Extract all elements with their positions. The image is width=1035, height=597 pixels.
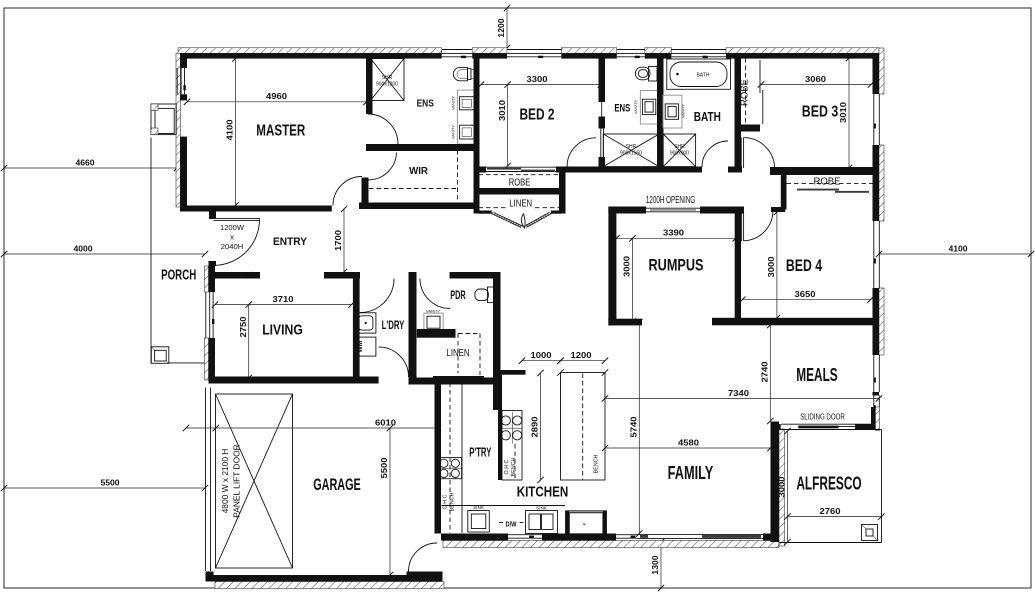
- svg-text:VANITY: VANITY: [681, 104, 686, 118]
- svg-text:PANEL LIFT DOOR: PANEL LIFT DOOR: [232, 444, 242, 517]
- svg-text:F: F: [582, 522, 587, 525]
- svg-text:4580: 4580: [678, 437, 699, 447]
- svg-text:FAMILY: FAMILY: [668, 463, 714, 483]
- svg-text:3000: 3000: [622, 256, 632, 277]
- svg-text:SHR: SHR: [626, 144, 637, 150]
- svg-text:900x1550: 900x1550: [620, 151, 642, 157]
- svg-text:4660: 4660: [75, 157, 94, 167]
- svg-text:BENCH: BENCH: [450, 492, 456, 511]
- svg-text:3710: 3710: [273, 294, 294, 304]
- svg-text:3390: 3390: [663, 228, 684, 238]
- svg-text:1200: 1200: [571, 350, 592, 360]
- svg-text:3010: 3010: [497, 100, 507, 121]
- svg-text:1200W: 1200W: [220, 223, 245, 232]
- svg-text:900x900: 900x900: [670, 151, 689, 157]
- svg-text:P'TRY: P'TRY: [469, 445, 492, 459]
- svg-text:SINK: SINK: [536, 506, 548, 511]
- svg-text:PORCH: PORCH: [161, 268, 196, 284]
- svg-text:2740: 2740: [760, 361, 770, 382]
- svg-text:4960: 4960: [266, 91, 287, 101]
- svg-text:2040H: 2040H: [221, 242, 243, 251]
- svg-text:3060: 3060: [805, 74, 826, 84]
- svg-text:1200H OPENING: 1200H OPENING: [646, 195, 695, 206]
- svg-text:SINK: SINK: [473, 505, 485, 510]
- svg-text:4100: 4100: [225, 119, 235, 140]
- svg-text:BED 3: BED 3: [802, 103, 839, 120]
- svg-text:1200: 1200: [496, 18, 506, 37]
- svg-text:KITCHEN: KITCHEN: [517, 484, 569, 501]
- svg-text:3300: 3300: [527, 74, 548, 84]
- svg-text:ENS: ENS: [614, 103, 630, 115]
- svg-text:ALFRESCO: ALFRESCO: [796, 474, 861, 494]
- svg-text:4000: 4000: [73, 243, 92, 253]
- svg-text:SLIDING DOOR: SLIDING DOOR: [800, 413, 845, 422]
- svg-text:1300: 1300: [650, 555, 660, 574]
- svg-text:7340: 7340: [728, 388, 749, 398]
- svg-text:5740: 5740: [629, 416, 639, 437]
- svg-text:3650: 3650: [795, 289, 816, 299]
- svg-text:4800 W x 2100 H: 4800 W x 2100 H: [220, 449, 230, 514]
- svg-text:LINEN: LINEN: [509, 197, 532, 209]
- svg-text:ENTRY: ENTRY: [273, 236, 308, 248]
- svg-text:WM: WM: [357, 341, 364, 353]
- svg-text:VANITY: VANITY: [451, 96, 456, 110]
- svg-text:BENCH: BENCH: [511, 457, 517, 476]
- svg-text:BED 4: BED 4: [786, 256, 823, 275]
- svg-text:MASTER: MASTER: [256, 123, 305, 140]
- svg-text:ROBE: ROBE: [509, 177, 531, 189]
- svg-text:ENS: ENS: [417, 98, 434, 109]
- svg-text:LIVING: LIVING: [262, 322, 303, 338]
- svg-text:2890: 2890: [530, 416, 540, 437]
- svg-text:L'DRY: L'DRY: [382, 318, 405, 332]
- svg-text:VANITY: VANITY: [633, 100, 638, 114]
- svg-text:VANITY: VANITY: [451, 125, 456, 139]
- svg-text:1700: 1700: [333, 230, 343, 251]
- svg-text:2750: 2750: [238, 316, 248, 337]
- svg-text:5500: 5500: [379, 457, 389, 478]
- svg-text:3010: 3010: [838, 102, 848, 123]
- svg-text:6010: 6010: [375, 417, 396, 427]
- svg-text:x: x: [230, 233, 234, 242]
- svg-text:ROBE: ROBE: [814, 177, 841, 188]
- svg-text:900x1200: 900x1200: [376, 82, 398, 88]
- svg-text:5500: 5500: [100, 477, 119, 487]
- svg-text:RUMPUS: RUMPUS: [649, 256, 704, 274]
- svg-text:MEALS: MEALS: [796, 365, 837, 385]
- svg-text:BATH: BATH: [697, 73, 710, 79]
- svg-text:GARAGE: GARAGE: [313, 476, 361, 494]
- svg-text:SHR: SHR: [382, 75, 393, 81]
- svg-text:SHR: SHR: [674, 144, 685, 150]
- svg-text:4100: 4100: [948, 243, 967, 253]
- svg-text:D/W: D/W: [506, 522, 517, 529]
- svg-text:3000: 3000: [777, 476, 787, 497]
- svg-text:2760: 2760: [820, 506, 841, 516]
- svg-text:O.H.C: O.H.C: [504, 459, 510, 474]
- svg-text:BED 2: BED 2: [519, 106, 554, 123]
- svg-text:BATH: BATH: [694, 109, 721, 124]
- svg-text:WIR: WIR: [409, 166, 428, 177]
- svg-text:O.H.C: O.H.C: [443, 494, 449, 509]
- svg-text:3000: 3000: [766, 256, 776, 277]
- svg-text:1000: 1000: [531, 350, 552, 360]
- svg-text:BENCH: BENCH: [594, 454, 600, 473]
- svg-text:PDR: PDR: [450, 288, 466, 302]
